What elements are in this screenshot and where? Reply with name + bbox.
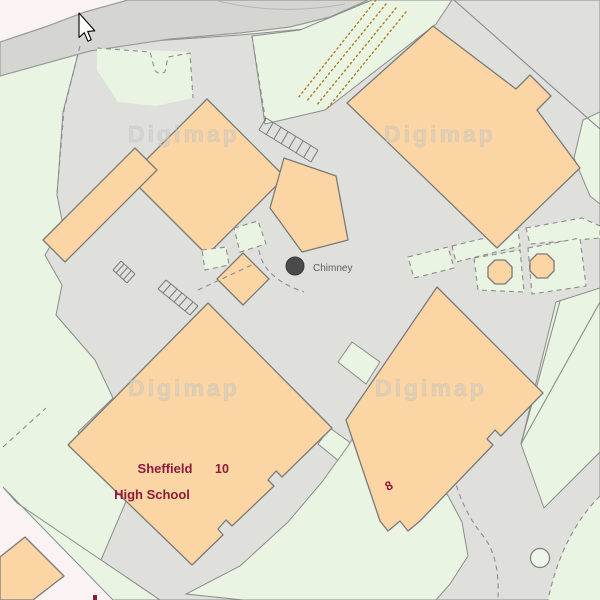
- digimap-watermark-1: Digimap: [128, 121, 240, 147]
- map-svg: Chimney Sheffield High School 10 8 Digim…: [0, 0, 600, 600]
- clipped-label-fragment: [93, 595, 97, 600]
- digimap-watermark-3: Digimap: [128, 375, 240, 401]
- digimap-watermark-4: Digimap: [375, 375, 487, 401]
- school-name-line1: Sheffield: [138, 461, 193, 476]
- structure-octagon-right: [530, 254, 554, 278]
- digimap-watermark-2: Digimap: [384, 121, 496, 147]
- building-10-label: 10: [215, 462, 229, 476]
- school-name-line2: High School: [114, 487, 190, 502]
- chimney-marker-icon: [286, 257, 304, 275]
- chimney-label: Chimney: [313, 263, 352, 274]
- map-canvas[interactable]: Chimney Sheffield High School 10 8 Digim…: [0, 0, 600, 600]
- tree-ring-icon: [531, 549, 550, 568]
- structure-octagon-left: [488, 260, 512, 284]
